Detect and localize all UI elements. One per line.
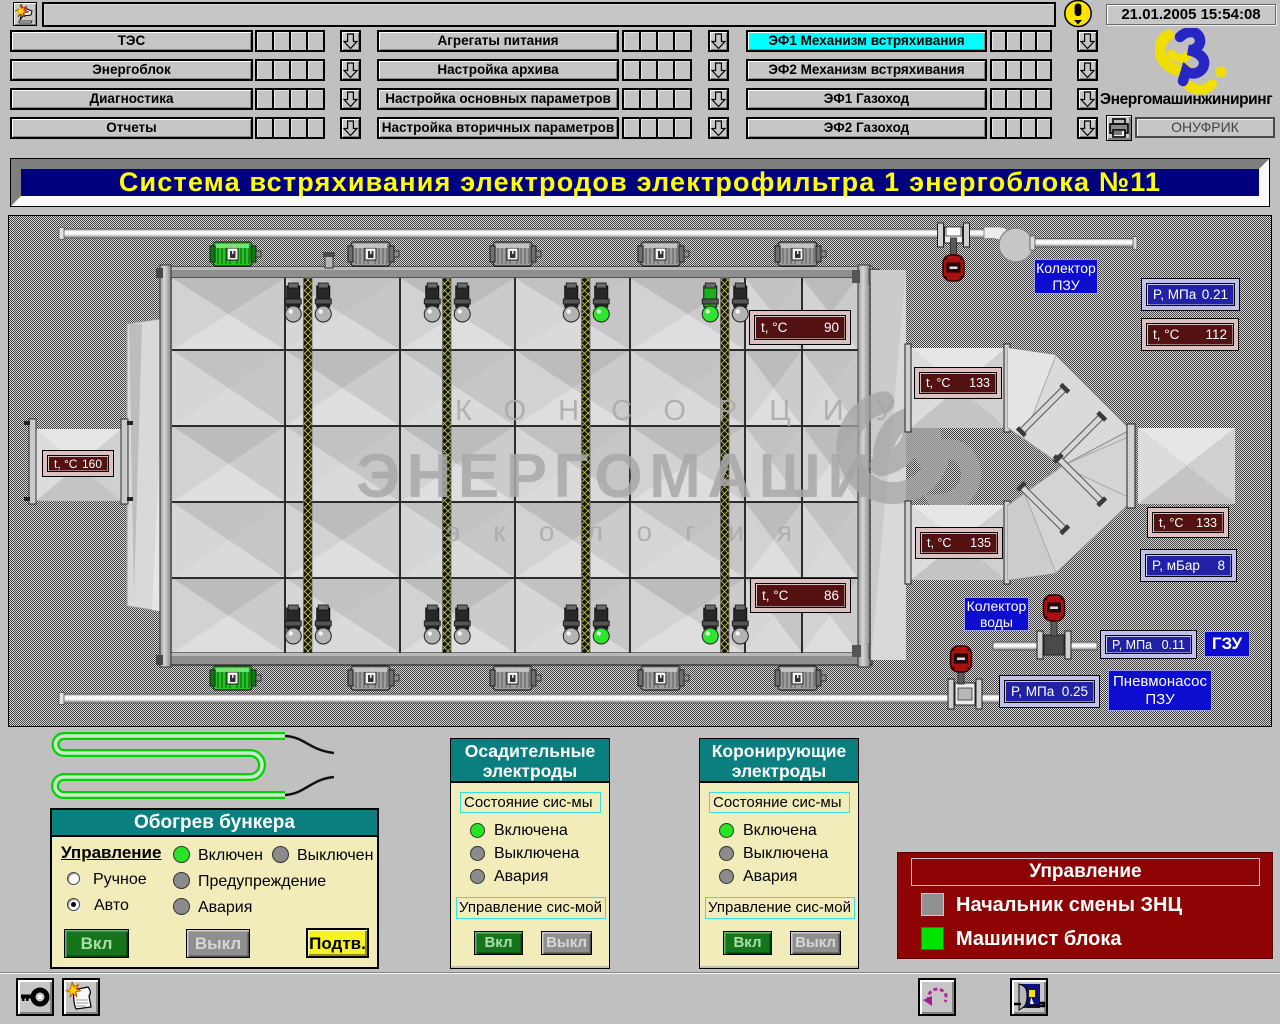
svg-text:ЭНЕРГОМАШИ: ЭНЕРГОМАШИ	[356, 442, 878, 511]
svg-text:экология: экология	[446, 516, 825, 547]
